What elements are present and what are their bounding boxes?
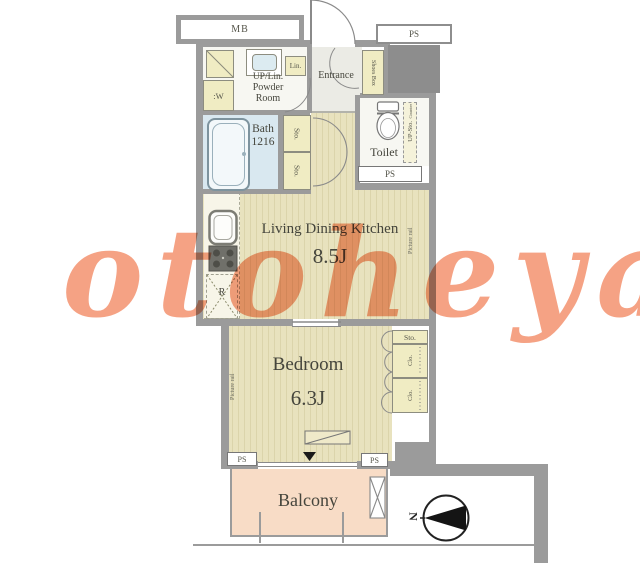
wall [193,544,534,546]
pipe-space-label: PS [409,29,419,39]
powder-room-label-line3: Room [234,94,302,105]
north-arrow-icon [420,496,469,541]
north-label: N [407,509,420,523]
vanity-bowl [252,54,277,71]
bedroom-size-label: 6.3J [258,387,358,410]
wall [355,183,429,190]
meter-box: MB [176,15,304,44]
washer-label: :W [213,91,223,101]
counter-label: Counter [408,104,413,119]
watermark-text: otoheya [62,212,640,334]
bath-size-label: 1216 [240,136,286,148]
shoes-box: Shoes Box [362,50,384,95]
linen-label: Lin. [290,62,301,70]
pipe-space-label: PS [385,169,395,179]
closet-label: Clo. [407,355,414,366]
wall [390,464,548,476]
toilet-label: Toilet [358,146,410,159]
storage-label: Sto. [293,128,302,140]
meter-box-label: MB [231,24,249,35]
hall-storage-1: Sto. [283,115,311,152]
picture-rail-label-bedroom: Picture rail [230,352,236,422]
pipe-space-bottom-left: PS [227,452,257,466]
storage-label: Sto. [293,165,302,177]
pipe-space-toilet: PS [358,166,422,182]
pipe-space-top: PS [376,24,452,44]
hall-storage-2: Sto. [283,152,311,190]
bedroom-label: Bedroom [238,355,378,376]
washing-machine-space: :W [203,80,234,111]
closet-2: Clo. [392,378,428,413]
balcony-window [258,463,357,467]
floorplan-image: MB PS PS PS PS :W Lin. Shoes Box Sto. St… [0,0,640,569]
entrance-step-line [312,111,355,113]
shoes-box-label: Shoes Box [370,60,376,86]
bath-label: Bath [240,123,286,135]
balcony-label: Balcony [262,491,354,510]
wall [534,464,548,563]
pipe-space-label: PS [370,456,379,465]
powder-room-label-line1: UP/Lin. [234,72,302,82]
closet-1: Clo. [392,344,428,378]
hallway-floor [311,113,355,190]
pipe-space-label: PS [238,455,247,464]
pipe-space-bottom-right: PS [361,453,388,467]
washstand [206,50,234,78]
entrance-label: Entrance [310,71,362,82]
pipe-shaft [388,45,440,93]
upper-storage-label: UP-Sto. [407,121,414,142]
closet-label: Clo. [407,390,414,401]
